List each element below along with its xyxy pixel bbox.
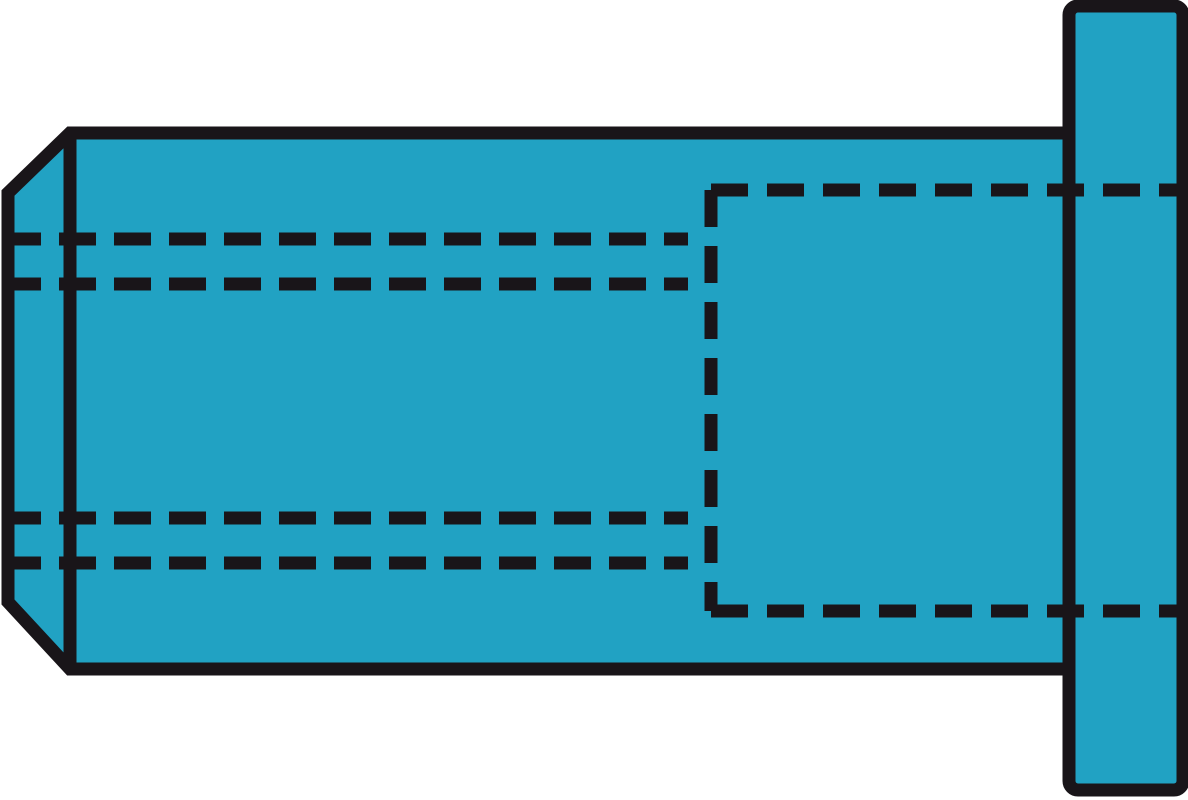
illustration-canvas	[0, 0, 1188, 800]
flange-head	[1069, 6, 1183, 790]
rivet-nut-body	[8, 133, 1090, 669]
rivet-nut-diagram	[0, 0, 1188, 800]
